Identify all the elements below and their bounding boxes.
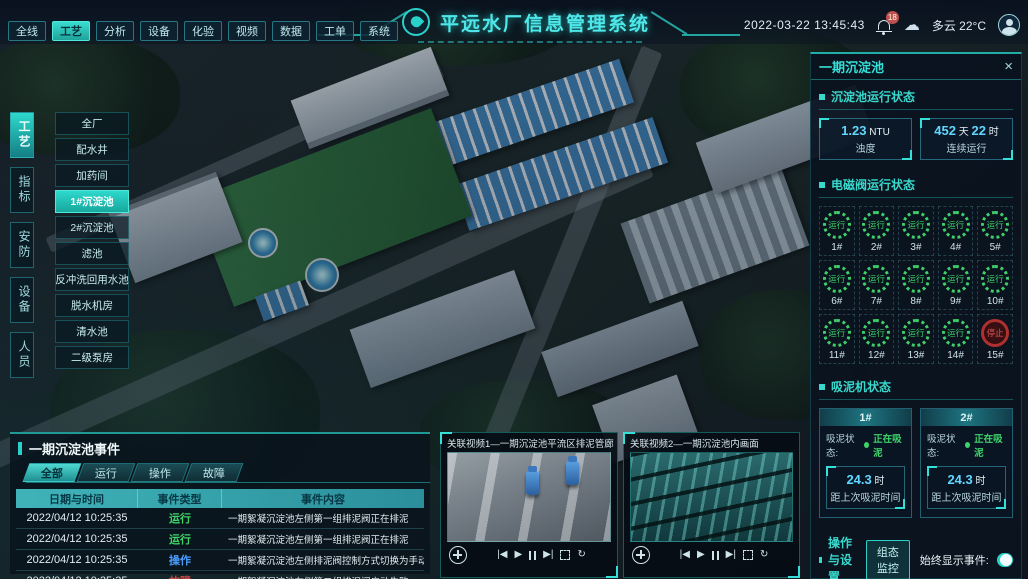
stat-value: 452 天 22 时 — [934, 123, 999, 138]
valve-cell-14#: 运行14# — [938, 314, 974, 364]
skip-back-icon[interactable]: |◀ — [497, 550, 507, 560]
valve-label: 1# — [831, 242, 842, 253]
valve-gauge-4#: 运行 — [942, 211, 970, 239]
pump-value-box: 24.3 时距上次吸泥时间 — [927, 466, 1006, 509]
valve-gauge-11#: 运行 — [823, 319, 851, 347]
events-table-header: 日期与时间事件类型事件内容 — [16, 489, 424, 508]
left-category-tabs: 工艺指标安防设备人员 — [10, 112, 34, 378]
valve-label: 11# — [829, 350, 845, 361]
valve-cell-13#: 运行13# — [898, 314, 934, 364]
pump-card-1#: 1#吸泥状态:正在吸泥24.3 时距上次吸泥时间 — [819, 408, 912, 518]
events-table-body: 2022/04/12 10:25:35运行一期絮凝沉淀池左侧第一组排泥阀正在排泥… — [16, 508, 424, 579]
menu-item-3[interactable]: 1#沉淀池 — [55, 190, 129, 213]
events-panel-title: 一期沉淀池事件 — [10, 434, 430, 461]
valve-label: 6# — [831, 296, 842, 307]
valve-cell-15#: 停止15# — [977, 314, 1013, 364]
event-tab-label: 运行 — [95, 465, 117, 481]
stat-number: 1.23 — [841, 123, 866, 138]
top-nav-tab-8[interactable]: 系统 — [360, 21, 398, 41]
valve-label: 14# — [947, 350, 964, 361]
valve-gauge-10#: 运行 — [981, 265, 1009, 293]
event-datetime: 2022/04/12 10:25:35 — [16, 508, 138, 528]
always-show-events-toggle[interactable] — [997, 553, 1013, 567]
status-dot-icon — [965, 442, 970, 448]
event-datetime: 2022/04/12 10:25:35 — [16, 550, 138, 570]
table-row[interactable]: 2022/04/12 10:25:35故障一期絮凝沉淀池左侧第二组排泥阀启动失败 — [16, 571, 424, 579]
app-title: 平远水厂信息管理系统 — [440, 9, 650, 36]
category-tab-2[interactable]: 安防 — [10, 222, 34, 268]
pumps-title-text: 吸泥机状态 — [831, 378, 891, 395]
section-bullet-icon — [819, 557, 822, 563]
operations-title: 操作与设置 — [819, 534, 858, 579]
tank-stats: 1.23 NTU浊度452 天 22 时连续运行 — [811, 114, 1021, 162]
stat-unit: NTU — [866, 127, 889, 138]
column-header-0: 日期与时间 — [16, 489, 138, 508]
valve-label: 15# — [987, 350, 1004, 361]
fullscreen-square — [560, 550, 570, 560]
pause-bars — [712, 551, 719, 560]
top-nav-tab-2[interactable]: 分析 — [96, 21, 134, 41]
operations-title-text: 操作与设置 — [828, 534, 858, 579]
always-show-events-label: 始终显示事件: — [920, 552, 989, 568]
detail-panel: 一期沉淀池 × 沉淀池运行状态 1.23 NTU浊度452 天 22 时连续运行… — [810, 52, 1022, 579]
menu-item-0[interactable]: 全厂 — [55, 112, 129, 135]
pause-icon[interactable] — [712, 551, 719, 560]
video-panel-2: 关联视频2—一期沉淀池内画面|◀▶▶|↻ — [623, 432, 800, 578]
event-content: 一期絮凝沉淀池左侧排泥阀控制方式切换为手动 — [222, 550, 424, 570]
category-tab-4[interactable]: 人员 — [10, 332, 34, 378]
stat-label: 浊度 — [856, 140, 876, 155]
valve-cell-4#: 运行4# — [938, 206, 974, 256]
valves-title-text: 电磁阀运行状态 — [831, 176, 915, 193]
pump-equipment — [566, 461, 579, 485]
column-header-1: 事件类型 — [138, 489, 222, 508]
valve-grid: 运行1#运行2#运行3#运行4#运行5#运行6#运行7#运行8#运行9#运行10… — [811, 202, 1021, 366]
table-row[interactable]: 2022/04/12 10:25:35运行一期絮凝沉淀池左侧第一组排泥阀正在排泥 — [16, 529, 424, 550]
skip-forward-icon[interactable]: ▶| — [543, 550, 553, 560]
ptz-dpad-icon[interactable] — [632, 546, 650, 564]
stat-value: 1.23 NTU — [841, 123, 890, 138]
tank-stat-0: 1.23 NTU浊度 — [819, 118, 912, 160]
valve-gauge-3#: 运行 — [902, 211, 930, 239]
process-menu: 全厂配水井加药间1#沉淀池2#沉淀池滤池反冲洗回用水池脱水机房清水池二级泵房 — [55, 112, 129, 372]
valve-gauge-7#: 运行 — [862, 265, 890, 293]
pump-equipment — [526, 471, 539, 495]
event-type: 操作 — [138, 550, 222, 570]
valve-label: 5# — [990, 242, 1001, 253]
event-content: 一期絮凝沉淀池左侧第二组排泥阀启动失败 — [222, 571, 424, 579]
top-nav-tab-5[interactable]: 视频 — [228, 21, 266, 41]
valve-cell-8#: 运行8# — [898, 260, 934, 310]
pump-value-box: 24.3 时距上次吸泥时间 — [826, 466, 905, 509]
pump-value-label: 距上次吸泥时间 — [831, 489, 901, 504]
valve-cell-7#: 运行7# — [859, 260, 895, 310]
event-tab-label: 全部 — [41, 465, 63, 481]
event-tab-0[interactable]: 全部 — [23, 463, 82, 482]
stat-unit: 时 — [872, 476, 885, 487]
fullscreen-icon[interactable] — [743, 550, 753, 560]
valve-cell-5#: 运行5# — [977, 206, 1013, 256]
event-datetime: 2022/04/12 10:25:35 — [16, 571, 138, 579]
events-table: 日期与时间事件类型事件内容 2022/04/12 10:25:35运行一期絮凝沉… — [16, 489, 424, 579]
pump-value: 24.3 时 — [846, 472, 884, 487]
user-avatar[interactable] — [998, 14, 1020, 36]
ptz-dpad-icon[interactable] — [449, 546, 467, 564]
event-tab-label: 故障 — [203, 465, 225, 481]
event-tab-label: 操作 — [149, 465, 171, 481]
brand: 平远水厂信息管理系统 — [402, 8, 650, 36]
category-tab-0[interactable]: 工艺 — [10, 112, 34, 158]
valve-label: 8# — [910, 296, 921, 307]
status-dot-icon — [864, 442, 869, 448]
top-nav-tab-6[interactable]: 数据 — [272, 21, 310, 41]
menu-item-7[interactable]: 脱水机房 — [55, 294, 129, 317]
pump-status-label: 吸泥状态: — [826, 431, 860, 459]
stat-label: 连续运行 — [947, 140, 987, 155]
events-panel: 一期沉淀池事件 全部运行操作故障 日期与时间事件类型事件内容 2022/04/1… — [10, 432, 430, 574]
stat-number: 24.3 — [846, 472, 871, 487]
valve-label: 9# — [950, 296, 961, 307]
pump-status-line: 吸泥状态:正在吸泥 — [820, 426, 911, 461]
header-decor-line — [651, 11, 688, 35]
title-accent-bar — [18, 442, 22, 455]
stat-unit: 时 — [973, 476, 986, 487]
stat-number: 22 — [972, 123, 986, 138]
column-header-2: 事件内容 — [222, 489, 424, 508]
tank-stat-1: 452 天 22 时连续运行 — [920, 118, 1013, 160]
replay-icon[interactable]: ↻ — [577, 550, 585, 560]
valve-gauge-12#: 运行 — [862, 319, 890, 347]
pump-cards: 1#吸泥状态:正在吸泥24.3 时距上次吸泥时间2#吸泥状态:正在吸泥24.3 … — [811, 404, 1021, 522]
event-type: 故障 — [138, 571, 222, 579]
pause-icon[interactable] — [529, 551, 536, 560]
valve-cell-9#: 运行9# — [938, 260, 974, 310]
valve-gauge-8#: 运行 — [902, 265, 930, 293]
pump-value: 24.3 时 — [947, 472, 985, 487]
logo-icon — [402, 8, 430, 36]
event-content: 一期絮凝沉淀池左侧第一组排泥阀正在排泥 — [222, 529, 424, 549]
weather-text: 多云 22°C — [932, 17, 986, 34]
video-feed — [447, 452, 611, 542]
stat-number: 24.3 — [947, 472, 972, 487]
pump-card-title: 2# — [921, 409, 1012, 426]
menu-item-6[interactable]: 反冲洗回用水池 — [55, 268, 129, 291]
valve-label: 7# — [871, 296, 882, 307]
bell-clapper — [882, 32, 885, 35]
menu-item-4[interactable]: 2#沉淀池 — [55, 216, 129, 239]
table-row[interactable]: 2022/04/12 10:25:35运行一期絮凝沉淀池左侧第一组排泥阀正在排泥 — [16, 508, 424, 529]
valve-label: 2# — [871, 242, 882, 253]
valve-cell-3#: 运行3# — [898, 206, 934, 256]
pump-status-value: 正在吸泥 — [974, 431, 1006, 459]
event-datetime: 2022/04/12 10:25:35 — [16, 529, 138, 549]
valve-cell-12#: 运行12# — [859, 314, 895, 364]
pump-status-value: 正在吸泥 — [873, 431, 905, 459]
header-decor-line — [682, 34, 740, 36]
menu-item-8[interactable]: 清水池 — [55, 320, 129, 343]
detail-panel-title: 一期沉淀池 — [819, 57, 884, 76]
section-bullet-icon — [819, 182, 825, 188]
datetime: 2022-03-22 13:45:43 — [744, 18, 865, 32]
fullscreen-icon[interactable] — [560, 550, 570, 560]
top-header: 全线工艺分析设备化验视频数据工单系统 平远水厂信息管理系统 2022-03-22… — [0, 0, 1028, 44]
video-panel-1: 关联视频1—一期沉淀池平流区排泥管廊|◀▶▶|↻ — [440, 432, 618, 578]
stat-unit: 天 — [956, 127, 972, 138]
play-icon[interactable]: ▶ — [697, 550, 705, 560]
valve-cell-2#: 运行2# — [859, 206, 895, 256]
close-icon[interactable]: × — [1004, 59, 1013, 74]
valve-gauge-6#: 运行 — [823, 265, 851, 293]
skip-forward-icon[interactable]: ▶| — [726, 550, 736, 560]
valve-label: 12# — [868, 350, 885, 361]
event-type: 运行 — [138, 508, 222, 528]
video-feed — [630, 452, 793, 542]
valve-gauge-2#: 运行 — [862, 211, 890, 239]
event-tab-3[interactable]: 故障 — [185, 463, 244, 482]
pump-card-title: 1# — [820, 409, 911, 426]
top-nav-tab-1[interactable]: 工艺 — [52, 21, 90, 41]
valve-gauge-15#: 停止 — [981, 319, 1009, 347]
event-content: 一期絮凝沉淀池左侧第一组排泥阀正在排泥 — [222, 508, 424, 528]
valve-gauge-13#: 运行 — [902, 319, 930, 347]
app-root: 全线工艺分析设备化验视频数据工单系统 平远水厂信息管理系统 2022-03-22… — [0, 0, 1028, 579]
valve-gauge-9#: 运行 — [942, 265, 970, 293]
valve-cell-11#: 运行11# — [819, 314, 855, 364]
tank-status-section-title: 沉淀池运行状态 — [819, 88, 1013, 110]
section-bullet-icon — [819, 94, 825, 100]
event-tab-2[interactable]: 操作 — [131, 463, 190, 482]
top-nav-tab-0[interactable]: 全线 — [8, 21, 46, 41]
event-filter-tabs: 全部运行操作故障 — [26, 463, 430, 483]
event-tab-1[interactable]: 运行 — [77, 463, 136, 482]
pump-card-2#: 2#吸泥状态:正在吸泥24.3 时距上次吸泥时间 — [920, 408, 1013, 518]
skip-back-icon[interactable]: |◀ — [680, 550, 690, 560]
valve-label: 4# — [950, 242, 961, 253]
menu-item-9[interactable]: 二级泵房 — [55, 346, 129, 369]
operations-section: 操作与设置 组态监控 始终显示事件: — [819, 534, 1013, 579]
play-icon[interactable]: ▶ — [514, 550, 522, 560]
pump-value-label: 距上次吸泥时间 — [932, 489, 1002, 504]
menu-item-1[interactable]: 配水井 — [55, 138, 129, 161]
top-nav-tab-7[interactable]: 工单 — [316, 21, 354, 41]
scada-monitor-button[interactable]: 组态监控 — [866, 540, 910, 579]
weather-cloud-icon: ☁ — [904, 15, 920, 35]
header-decor-dash — [418, 41, 642, 43]
valve-gauge-5#: 运行 — [981, 211, 1009, 239]
menu-item-2[interactable]: 加药间 — [55, 164, 129, 187]
category-tab-1[interactable]: 指标 — [10, 167, 34, 213]
pump-status-label: 吸泥状态: — [927, 431, 961, 459]
header-right: 2022-03-22 13:45:43 18 ☁ 多云 22°C — [744, 14, 1020, 36]
tank-status-title-text: 沉淀池运行状态 — [831, 88, 915, 105]
pumps-section-title: 吸泥机状态 — [819, 378, 1013, 400]
valve-gauge-1#: 运行 — [823, 211, 851, 239]
valve-cell-1#: 运行1# — [819, 206, 855, 256]
table-row[interactable]: 2022/04/12 10:25:35操作一期絮凝沉淀池左侧排泥阀控制方式切换为… — [16, 550, 424, 571]
events-title-text: 一期沉淀池事件 — [29, 439, 120, 458]
valve-label: 13# — [908, 350, 925, 361]
category-tab-3[interactable]: 设备 — [10, 277, 34, 323]
valves-section-title: 电磁阀运行状态 — [819, 176, 1013, 198]
stat-number: 452 — [934, 123, 956, 138]
event-type: 运行 — [138, 529, 222, 549]
fullscreen-square — [743, 550, 753, 560]
notification-bell-icon[interactable]: 18 — [877, 18, 892, 33]
top-nav-tab-4[interactable]: 化验 — [184, 21, 222, 41]
valve-label: 3# — [910, 242, 921, 253]
notification-badge: 18 — [886, 11, 899, 24]
replay-icon[interactable]: ↻ — [760, 550, 768, 560]
detail-panel-header: 一期沉淀池 × — [811, 54, 1021, 80]
valve-cell-10#: 运行10# — [977, 260, 1013, 310]
pause-bars — [529, 551, 536, 560]
valve-label: 10# — [987, 296, 1004, 307]
video-title: 关联视频2—一期沉淀池内画面 — [624, 433, 799, 452]
pump-status-line: 吸泥状态:正在吸泥 — [921, 426, 1012, 461]
valve-cell-6#: 运行6# — [819, 260, 855, 310]
video-controls: |◀▶▶|↻ — [441, 542, 617, 568]
menu-item-5[interactable]: 滤池 — [55, 242, 129, 265]
video-title: 关联视频1—一期沉淀池平流区排泥管廊 — [441, 433, 617, 452]
top-nav-tabs: 全线工艺分析设备化验视频数据工单系统 — [8, 21, 398, 41]
section-bullet-icon — [819, 384, 825, 390]
stat-unit: 时 — [986, 127, 999, 138]
valve-gauge-14#: 运行 — [942, 319, 970, 347]
top-nav-tab-3[interactable]: 设备 — [140, 21, 178, 41]
video-controls: |◀▶▶|↻ — [624, 542, 799, 568]
